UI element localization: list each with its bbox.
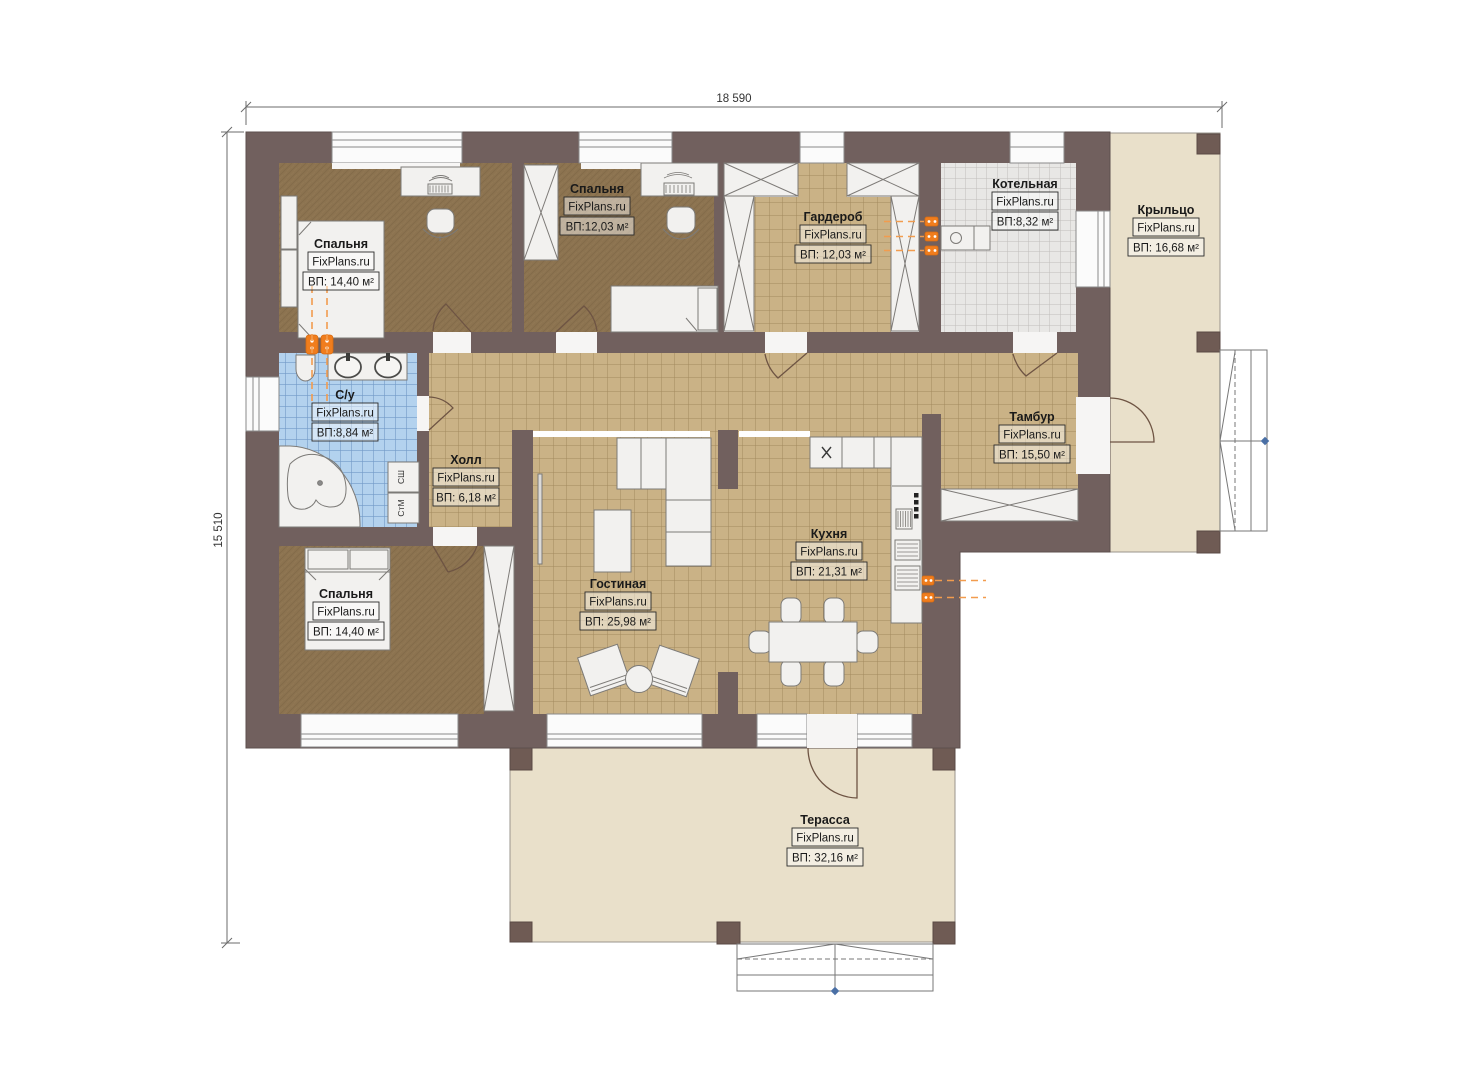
svg-text:FixPlans.ru: FixPlans.ru <box>996 197 1054 209</box>
svg-text:Терасса: Терасса <box>800 813 851 827</box>
svg-text:Холл: Холл <box>450 453 481 467</box>
svg-text:FixPlans.ru: FixPlans.ru <box>804 230 862 242</box>
svg-text:ВП: 32,16 м²: ВП: 32,16 м² <box>792 853 858 865</box>
svg-text:Гостиная: Гостиная <box>590 577 647 591</box>
svg-text:Спальня: Спальня <box>314 237 368 251</box>
svg-text:Крыльцо: Крыльцо <box>1138 203 1195 217</box>
svg-text:С/у: С/у <box>335 388 355 402</box>
svg-text:ВП: 14,40 м²: ВП: 14,40 м² <box>313 627 379 639</box>
svg-text:Спальня: Спальня <box>570 182 624 196</box>
svg-text:Гардероб: Гардероб <box>803 210 862 224</box>
svg-text:FixPlans.ru: FixPlans.ru <box>1003 430 1061 442</box>
svg-text:FixPlans.ru: FixPlans.ru <box>796 833 854 845</box>
svg-text:ВП: 16,68 м²: ВП: 16,68 м² <box>1133 243 1199 255</box>
svg-text:Тамбур: Тамбур <box>1009 410 1055 424</box>
svg-text:ВП:8,84 м²: ВП:8,84 м² <box>317 428 374 440</box>
svg-text:ВП: 25,98 м²: ВП: 25,98 м² <box>585 617 651 629</box>
svg-text:Кухня: Кухня <box>811 527 848 541</box>
svg-text:СтМ: СтМ <box>396 499 406 516</box>
svg-text:Котельная: Котельная <box>992 177 1057 191</box>
svg-text:ВП:12,03 м²: ВП:12,03 м² <box>566 222 629 234</box>
svg-text:FixPlans.ru: FixPlans.ru <box>312 257 370 269</box>
svg-text:ВП: 12,03 м²: ВП: 12,03 м² <box>800 250 866 262</box>
svg-text:ВП: 15,50 м²: ВП: 15,50 м² <box>999 450 1065 462</box>
svg-text:СШ: СШ <box>396 470 406 484</box>
svg-text:ВП:8,32 м²: ВП:8,32 м² <box>997 217 1054 229</box>
svg-text:FixPlans.ru: FixPlans.ru <box>317 607 375 619</box>
svg-text:FixPlans.ru: FixPlans.ru <box>1137 223 1195 235</box>
svg-text:FixPlans.ru: FixPlans.ru <box>800 547 858 559</box>
svg-text:ВП: 14,40 м²: ВП: 14,40 м² <box>308 277 374 289</box>
svg-text:ВП: 6,18 м²: ВП: 6,18 м² <box>436 493 496 505</box>
svg-text:FixPlans.ru: FixPlans.ru <box>316 408 374 420</box>
svg-text:15 510: 15 510 <box>213 512 225 547</box>
svg-text:FixPlans.ru: FixPlans.ru <box>437 473 495 485</box>
svg-text:ВП: 21,31 м²: ВП: 21,31 м² <box>796 567 862 579</box>
svg-text:FixPlans.ru: FixPlans.ru <box>568 202 626 214</box>
svg-text:FixPlans.ru: FixPlans.ru <box>589 597 647 609</box>
svg-text:Спальня: Спальня <box>319 587 373 601</box>
svg-text:18 590: 18 590 <box>716 93 751 105</box>
